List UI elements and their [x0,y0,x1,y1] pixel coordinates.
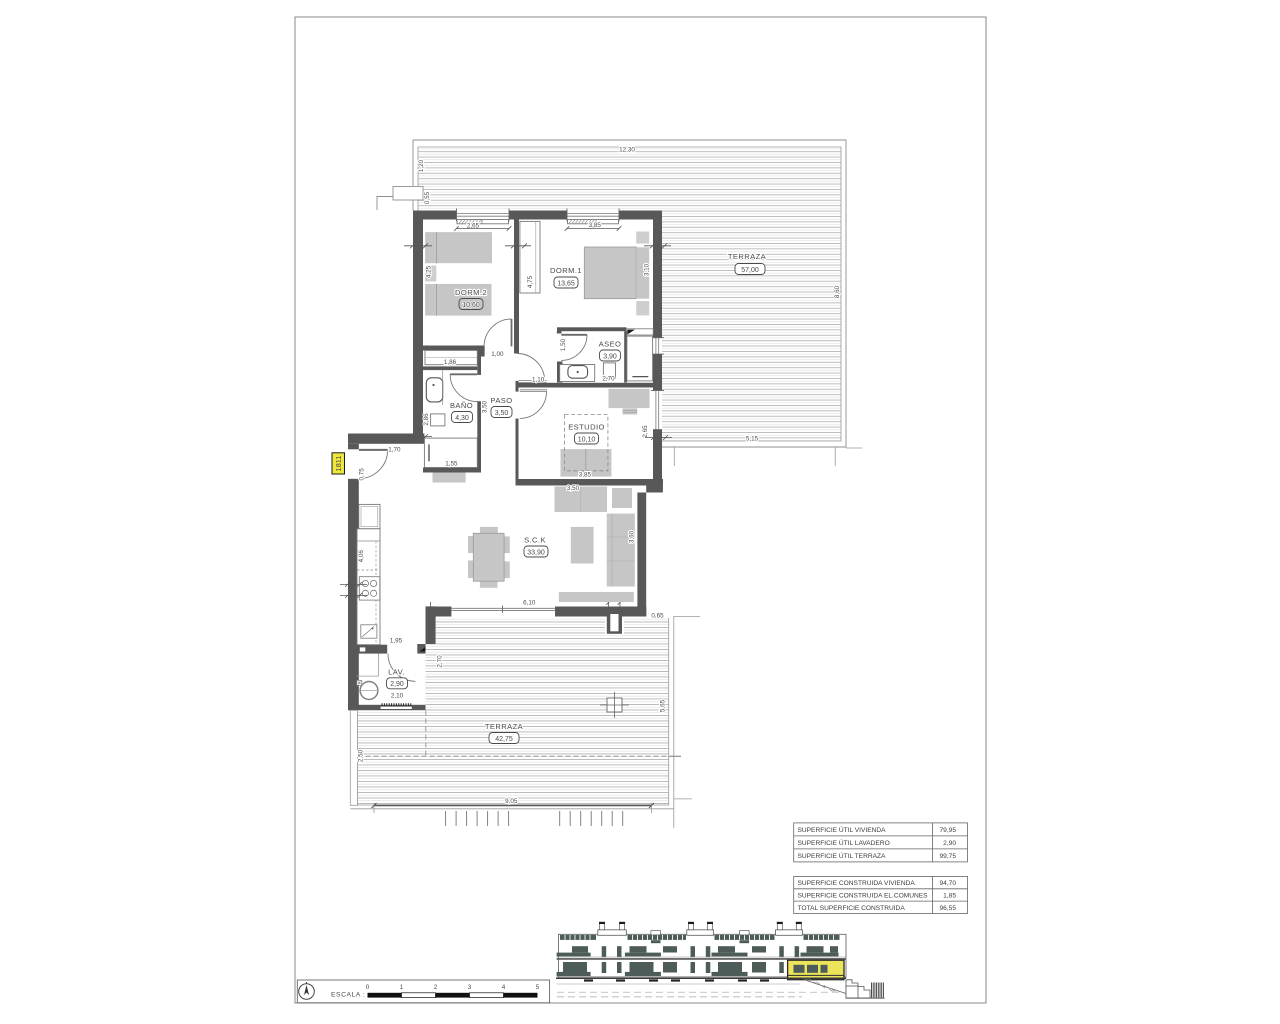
svg-text:2,10: 2,10 [391,692,404,699]
svg-text:99,75: 99,75 [939,853,956,860]
svg-text:4,25: 4,25 [426,265,433,278]
svg-text:33,90: 33,90 [527,549,545,556]
svg-text:3,85: 3,85 [589,222,602,229]
svg-text:1811: 1811 [334,455,343,471]
svg-text:TERRAZA: TERRAZA [728,252,767,261]
svg-text:2,65: 2,65 [642,425,649,438]
svg-text:1,50: 1,50 [560,338,567,351]
svg-text:1,00: 1,00 [491,351,504,358]
svg-text:79,95: 79,95 [939,827,956,834]
svg-text:2,86: 2,86 [423,413,430,426]
svg-text:3,50: 3,50 [482,400,489,413]
svg-text:8,60: 8,60 [834,285,841,298]
svg-text:3,50: 3,50 [567,485,580,492]
svg-text:96,55: 96,55 [939,905,956,912]
svg-text:42,75: 42,75 [495,736,513,743]
svg-text:5,65: 5,65 [660,699,667,712]
svg-text:1,70: 1,70 [388,447,401,454]
svg-text:9,05: 9,05 [505,798,518,805]
svg-text:57,00: 57,00 [741,267,759,274]
svg-text:2,90: 2,90 [390,681,404,688]
svg-text:4: 4 [502,984,506,991]
svg-text:ESTUDIO: ESTUDIO [568,423,605,432]
svg-text:SUPERFICIE CONSTRUIDA EL.COMUN: SUPERFICIE CONSTRUIDA EL.COMUNES [798,893,929,900]
svg-text:DORM.1: DORM.1 [550,266,582,275]
svg-text:SUPERFICIE ÚTIL TERRAZA: SUPERFICIE ÚTIL TERRAZA [798,851,887,860]
svg-text:10,10: 10,10 [578,436,596,443]
svg-text:DORM.2: DORM.2 [455,288,487,297]
svg-text:6,10: 6,10 [523,600,536,607]
svg-text:0,75: 0,75 [359,468,366,481]
svg-text:1,20: 1,20 [418,159,425,172]
svg-text:SUPERFICIE CONSTRUIDA VIVIENDA: SUPERFICIE CONSTRUIDA VIVIENDA [798,880,916,887]
svg-text:0,55: 0,55 [424,191,431,204]
svg-text:PASO: PASO [490,396,512,405]
svg-text:13,65: 13,65 [557,280,575,287]
svg-text:1,55: 1,55 [445,461,458,468]
svg-text:SUPERFICIE ÚTIL LAVADERO: SUPERFICIE ÚTIL LAVADERO [798,838,890,847]
svg-text:4,06: 4,06 [358,550,365,563]
svg-text:2,50: 2,50 [357,749,364,762]
svg-text:5,15: 5,15 [746,436,759,443]
svg-text:3,90: 3,90 [603,353,617,360]
svg-text:SUPERFICIE ÚTIL VIVIENDA: SUPERFICIE ÚTIL VIVIENDA [798,825,887,834]
svg-text:0: 0 [366,984,370,991]
svg-text:ESCALA :: ESCALA : [331,991,365,998]
svg-text:3,10: 3,10 [643,263,650,276]
svg-text:1,86: 1,86 [444,359,457,366]
svg-text:1: 1 [400,984,404,991]
svg-text:2: 2 [434,984,438,991]
svg-text:3: 3 [468,984,472,991]
svg-text:3,50: 3,50 [495,410,509,417]
svg-text:LAV.: LAV. [388,668,405,677]
svg-text:10,60: 10,60 [462,302,480,309]
svg-text:2,70: 2,70 [602,376,615,383]
svg-text:5: 5 [536,984,540,991]
svg-text:TERRAZA: TERRAZA [485,722,524,731]
svg-text:2,70: 2,70 [437,655,444,668]
svg-text:4,30: 4,30 [455,415,469,422]
svg-text:TOTAL SUPERFICIE CONSTRUIDA: TOTAL SUPERFICIE CONSTRUIDA [798,905,906,912]
svg-text:BAÑO: BAÑO [450,401,473,410]
svg-text:1,85: 1,85 [943,893,956,900]
svg-text:4,75: 4,75 [527,275,534,288]
svg-text:1,10: 1,10 [532,376,545,383]
svg-text:3,60: 3,60 [629,530,636,543]
svg-text:94,70: 94,70 [939,880,956,887]
svg-text:2,90: 2,90 [943,840,956,847]
svg-text:1,95: 1,95 [390,638,403,645]
svg-text:S.C.K: S.C.K [524,536,546,545]
svg-text:ASEO: ASEO [599,340,622,349]
svg-text:12,30: 12,30 [619,147,635,154]
svg-text:3,85: 3,85 [579,472,592,479]
